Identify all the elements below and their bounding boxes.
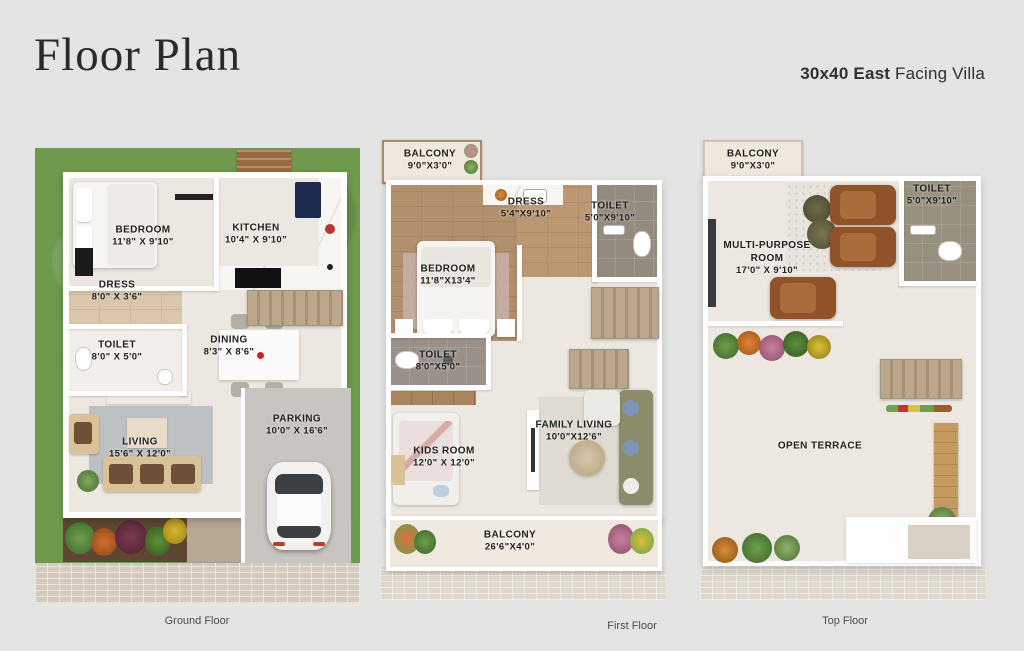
wall [486, 333, 491, 389]
plant [742, 533, 772, 563]
room-dims: 12'0" X 12'0" [413, 457, 475, 469]
ground-pavement [35, 563, 360, 603]
bed [417, 241, 495, 337]
pillow [76, 188, 92, 222]
car-taillight [313, 542, 325, 546]
plant [759, 335, 785, 361]
plant [774, 535, 800, 561]
room-name: BALCONY [727, 147, 779, 160]
wall [391, 385, 491, 390]
room-dims: 5'0"X9'10" [907, 195, 957, 207]
room-dims: 11'8" X 9'10" [112, 236, 174, 248]
ground-parking-label: PARKING 10'0" X 16'6" [266, 412, 328, 437]
room-dims: 8'3" X 8'6" [204, 346, 255, 358]
room-name: TOILET [92, 338, 143, 351]
wall [391, 333, 491, 338]
car-roof [277, 494, 321, 526]
first-floor-plan: BALCONY 9'0"X3'0" DRESS 5'4"X9'10" TOILE… [380, 135, 665, 600]
floor-plan-poster: { "header": { "title": "Floor Plan", "su… [0, 0, 1024, 651]
wall [708, 321, 843, 326]
tv-icon [531, 428, 535, 472]
wall [592, 277, 657, 282]
round-coffee-table [569, 440, 605, 476]
first-dress-label: DRESS 5'4"X9'10" [501, 195, 551, 220]
roof-inset [846, 517, 976, 563]
plant [783, 331, 809, 357]
planter-strip [886, 405, 952, 412]
recliner-chair [830, 227, 896, 267]
pillow [423, 319, 453, 333]
kids-bench [391, 455, 405, 485]
room-dims: 5'4"X9'10" [501, 208, 551, 220]
ground-floor-caption: Ground Floor [165, 615, 230, 627]
room-dims: 9'0"X3'0" [404, 160, 456, 172]
room-name: MULTI-PURPOSE ROOM [711, 239, 823, 265]
cushion [74, 422, 92, 444]
car-taillight [273, 542, 285, 546]
plant [807, 335, 831, 359]
room-dims: 26'6"X4'0" [484, 541, 536, 553]
washbasin-icon [157, 369, 173, 385]
pillow [459, 319, 489, 333]
wall [214, 178, 219, 290]
kids-pillow [433, 485, 449, 497]
hob-dot [327, 264, 333, 270]
cushion [171, 464, 195, 484]
ground-living-label: LIVING 15'6" X 12'0" [109, 435, 171, 460]
shower-tray [603, 225, 625, 235]
ground-toilet-label: TOILET 8'0" X 5'0" [92, 338, 143, 363]
centerpiece [257, 352, 264, 359]
room-name: PARKING [266, 412, 328, 425]
top-toilet-label: TOILET 5'0"X9'10" [907, 182, 957, 207]
ground-floor-plan: BEDROOM 11'8" X 9'10" KITCHEN 10'4" X 9'… [35, 148, 360, 603]
nightstand [497, 319, 515, 337]
balcony-flowers [414, 530, 436, 554]
first-floor-caption: First Floor [607, 620, 657, 632]
recliner-seat [780, 283, 816, 312]
stove [235, 268, 281, 288]
plant [713, 333, 739, 359]
wall [899, 181, 904, 286]
kitchen-window-counter [175, 194, 213, 200]
balcony-flowers [630, 528, 654, 554]
room-name: BEDROOM [420, 262, 475, 275]
three-seat-sofa [103, 456, 201, 492]
page-title: Floor Plan [34, 28, 241, 82]
room-name: BALCONY [404, 147, 456, 160]
cushion [140, 464, 164, 484]
car-windshield [275, 474, 323, 494]
wall [182, 324, 187, 396]
roof-inset-panel [908, 525, 970, 559]
balcony-flowers [464, 160, 478, 174]
top-balcony-label: BALCONY 9'0"X3'0" [727, 147, 779, 172]
single-sofa [69, 414, 99, 454]
room-dims: 8'0"X5'0" [416, 361, 461, 373]
room-name: TOILET [585, 199, 635, 212]
room-name: KITCHEN [225, 221, 287, 234]
room-name: BEDROOM [112, 223, 174, 236]
top-house-outline [703, 176, 981, 566]
sink-icon [325, 224, 335, 234]
villa-subtitle-bold: 30x40 East [800, 64, 890, 83]
ground-flower-bed [63, 516, 187, 562]
first-toilet-top-label: TOILET 5'0"X9'10" [585, 199, 635, 224]
room-name: KIDS ROOM [413, 444, 475, 457]
plant [737, 331, 761, 355]
first-balcony-top-label: BALCONY 9'0"X3'0" [404, 147, 456, 172]
sofa-pillow [623, 440, 639, 456]
ground-bedroom-label: BEDROOM 11'8" X 9'10" [112, 223, 174, 248]
wall [69, 391, 187, 396]
wall [69, 324, 187, 329]
first-toilet-mid-label: TOILET 8'0"X5'0" [416, 348, 461, 373]
ground-dress-label: DRESS 8'0" X 3'6" [92, 278, 143, 303]
first-bedroom-label: BEDROOM 11'8"X13'4" [420, 262, 475, 287]
wardrobe [391, 391, 476, 405]
room-dims: 15'6" X 12'0" [109, 448, 171, 460]
recliner-chair [830, 185, 896, 225]
room-dims: 17'0" X 9'10" [711, 265, 823, 277]
plant [163, 518, 187, 544]
room-dims: 8'0" X 5'0" [92, 351, 143, 363]
room-name: DRESS [92, 278, 143, 291]
plant [91, 528, 117, 556]
room-dims: 10'0"X12'6" [536, 431, 613, 443]
plant [115, 520, 147, 554]
bath-counter [910, 225, 936, 235]
balcony-flowers [464, 144, 478, 158]
kitchen-counter-right [319, 178, 341, 290]
first-pavement [380, 567, 665, 600]
room-name: BALCONY [484, 528, 536, 541]
recliner-seat [840, 233, 876, 261]
ground-kitchen-label: KITCHEN 10'4" X 9'10" [225, 221, 287, 246]
room-name: TOILET [416, 348, 461, 361]
staircase [247, 290, 343, 326]
room-name: LIVING [109, 435, 171, 448]
room-dims: 10'0" X 16'6" [266, 425, 328, 437]
room-dims: 10'4" X 9'10" [225, 234, 287, 246]
recliner-chair [770, 277, 836, 319]
first-kids-room-label: KIDS ROOM 12'0" X 12'0" [413, 444, 475, 469]
room-dims: 11'8"X13'4" [420, 275, 475, 287]
room-dims: 8'0" X 3'6" [92, 291, 143, 303]
toilet-icon [75, 347, 92, 371]
top-multi-purpose-label: MULTI-PURPOSE ROOM 17'0" X 9'10" [711, 239, 823, 277]
first-balcony-bottom-label: BALCONY 26'6"X4'0" [484, 528, 536, 553]
plant [712, 537, 738, 563]
staircase [880, 359, 962, 399]
top-floor-caption: Top Floor [822, 615, 868, 627]
terrace-flower-bed [713, 331, 835, 363]
toilet-icon [938, 241, 962, 261]
staircase-upper [591, 287, 659, 339]
family-sofa [619, 390, 653, 505]
top-floor-plan: BALCONY 9'0"X3'0" TOILET 5'0"X9'10" MULT… [700, 140, 985, 600]
staircase-lower [569, 349, 629, 389]
wooden-bench [934, 423, 958, 519]
top-open-terrace-label: OPEN TERRACE [778, 440, 862, 453]
sofa-pillow [623, 478, 639, 494]
car-rear-window [277, 526, 321, 538]
room-name: TOILET [907, 182, 957, 195]
room-name: DINING [204, 333, 255, 346]
car [267, 462, 331, 550]
room-name: FAMILY LIVING [536, 418, 613, 431]
room-dims: 5'0"X9'10" [585, 212, 635, 224]
cushion [109, 464, 133, 484]
recliner-seat [840, 191, 876, 219]
tv-cabinet [75, 248, 93, 276]
first-family-living-label: FAMILY LIVING 10'0"X12'6" [536, 418, 613, 443]
toilet-icon [633, 231, 651, 257]
villa-subtitle-rest: Facing Villa [890, 64, 985, 83]
sofa-pillow [623, 400, 639, 416]
ground-dining-label: DINING 8'3" X 8'6" [204, 333, 255, 358]
indoor-plant [77, 470, 99, 492]
refrigerator [295, 182, 321, 218]
top-pavement [700, 567, 985, 600]
room-name: DRESS [501, 195, 551, 208]
wall [517, 245, 522, 341]
room-dims: 9'0"X3'0" [727, 160, 779, 172]
wall [899, 281, 976, 286]
room-name: OPEN TERRACE [778, 440, 862, 453]
villa-subtitle: 30x40 East Facing Villa [800, 64, 985, 84]
